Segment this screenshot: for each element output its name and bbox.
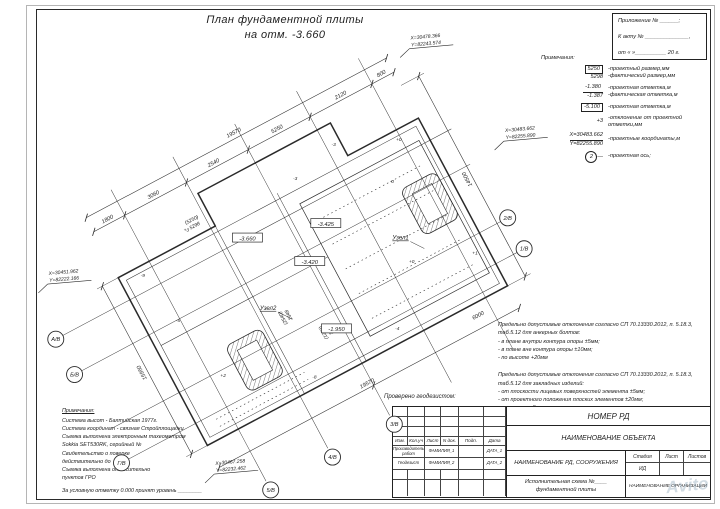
dimension-tick	[182, 178, 190, 186]
deviation-label: -8	[312, 374, 317, 380]
dimension-label: 19570	[226, 127, 243, 140]
deviation-label: -4	[395, 326, 400, 332]
deviation-label: +0	[396, 137, 402, 143]
text: 4/В	[328, 455, 337, 461]
axis-bubble: 1/В	[516, 241, 532, 257]
axis-bubble: 5/В	[263, 482, 279, 498]
text: +2	[220, 373, 226, 379]
dimension-tick	[521, 272, 529, 280]
dimension-tick	[187, 450, 195, 458]
axis-bubble: Б/В	[67, 367, 83, 383]
deviation-label: +1	[472, 250, 478, 256]
text: +3	[184, 227, 190, 233]
coordinate-label: Х=30483.662Y=82255.890	[493, 124, 549, 150]
dimension-label: 2120	[333, 90, 348, 102]
deviation-label: -0	[390, 179, 395, 185]
text: -4	[395, 326, 400, 332]
text: 1/В	[520, 247, 529, 253]
dimension-tick	[382, 54, 390, 62]
text: +1	[472, 250, 478, 256]
text: +0	[409, 259, 415, 265]
plan-line	[508, 274, 531, 286]
deviation-label: -3	[293, 176, 298, 182]
numbered-axis-line	[173, 157, 328, 448]
dimension-label: 14500	[461, 170, 474, 187]
leader-line	[204, 474, 215, 483]
deviation-label: -5	[176, 318, 181, 324]
text: +0	[396, 137, 402, 143]
bolt-row-dotted	[359, 239, 462, 294]
text: -9	[141, 273, 146, 279]
plan-line	[186, 445, 207, 456]
node-label: Узел1	[391, 236, 424, 249]
dimension-tick	[515, 304, 523, 312]
foundation-plan: 1800306025405250212080019570195701595014…	[0, 0, 720, 509]
text: Узел1	[391, 236, 408, 242]
numbered-axis-line	[297, 91, 452, 382]
text: -3.420	[302, 260, 319, 266]
dimension-chain	[102, 286, 191, 454]
dimension-tick	[306, 113, 314, 121]
dimension-label: 5250	[270, 124, 285, 136]
axis-and-dimension-lines	[13, 34, 558, 509]
text: -3.425	[318, 222, 335, 228]
dimension-chain	[94, 72, 394, 232]
text: -0	[390, 179, 395, 185]
elevation-mark: -3.425	[311, 219, 341, 228]
dimension-tick	[244, 146, 252, 154]
deviation-label: +2	[220, 373, 226, 379]
plan-line	[97, 278, 118, 289]
dimension-label: 6000	[471, 310, 486, 322]
text: 5/В	[266, 488, 275, 494]
text: Г/В	[117, 461, 126, 467]
coordinate-label: Х=30467.258Y=82232.462	[203, 457, 259, 483]
plan-labels: 1800306025405250212080019570195701595014…	[0, 0, 642, 509]
text: 2/В	[502, 216, 512, 222]
letter-axis-line	[112, 222, 500, 429]
dimension-tick	[121, 211, 129, 219]
coordinate-label: Х=30478.366Y=82243.574	[398, 32, 454, 58]
numbered-axis-line	[358, 58, 513, 349]
deviation-label: -9	[141, 273, 146, 279]
text: А/В	[50, 337, 60, 343]
axis-bubble: 2/В	[500, 210, 516, 226]
anchor-bolt-group	[225, 328, 285, 393]
text: -8	[312, 374, 317, 380]
dimension-label: 800	[376, 69, 388, 79]
text: -3	[332, 142, 337, 148]
text: -1.950	[328, 327, 345, 333]
dimension-chain	[219, 308, 519, 468]
dimension-tick	[368, 80, 376, 88]
dimension-tick	[90, 228, 98, 236]
dimension-label: 1800	[101, 214, 116, 226]
leader-line	[399, 49, 410, 58]
leader-line	[494, 141, 505, 150]
text: Б/В	[70, 373, 79, 379]
text: -3	[293, 176, 298, 182]
drawing-sheet: План фундаментной плиты на отм. -3.660 П…	[0, 0, 720, 509]
dimension-tick	[415, 72, 423, 80]
axis-bubble: А/В	[48, 331, 64, 347]
coordinate-label: Х=30451.962Y=82222.166	[36, 267, 92, 293]
text: Узел2	[259, 306, 277, 312]
elevation-mark: -3.660	[232, 233, 262, 242]
axis-bubble: 3/В	[386, 416, 402, 432]
dimension-tick	[82, 214, 90, 222]
dimension-label: 3060	[147, 189, 162, 201]
axis-bubble: 4/В	[325, 449, 341, 465]
elevation-mark: -1.950	[321, 324, 351, 333]
elevation-mark: -3.420	[295, 257, 325, 266]
text: -3.660	[239, 236, 256, 242]
text: 3/В	[390, 422, 399, 428]
dimension-label: 2540	[206, 157, 221, 169]
text: -5	[176, 318, 181, 324]
deviation-label: +0	[409, 259, 415, 265]
deviation-label: +3	[184, 227, 190, 233]
dimension-chain	[86, 58, 386, 218]
letter-axis-line	[129, 252, 517, 459]
deviation-label: -3	[332, 142, 337, 148]
dimension-label: 15950	[136, 363, 149, 380]
dimension-tick	[98, 282, 106, 290]
axis-bubble: Г/В	[114, 455, 130, 471]
dimension-tick	[390, 68, 398, 76]
bolt-row-dotted	[372, 263, 475, 318]
leader-line	[38, 284, 49, 293]
leader-line	[410, 242, 424, 249]
